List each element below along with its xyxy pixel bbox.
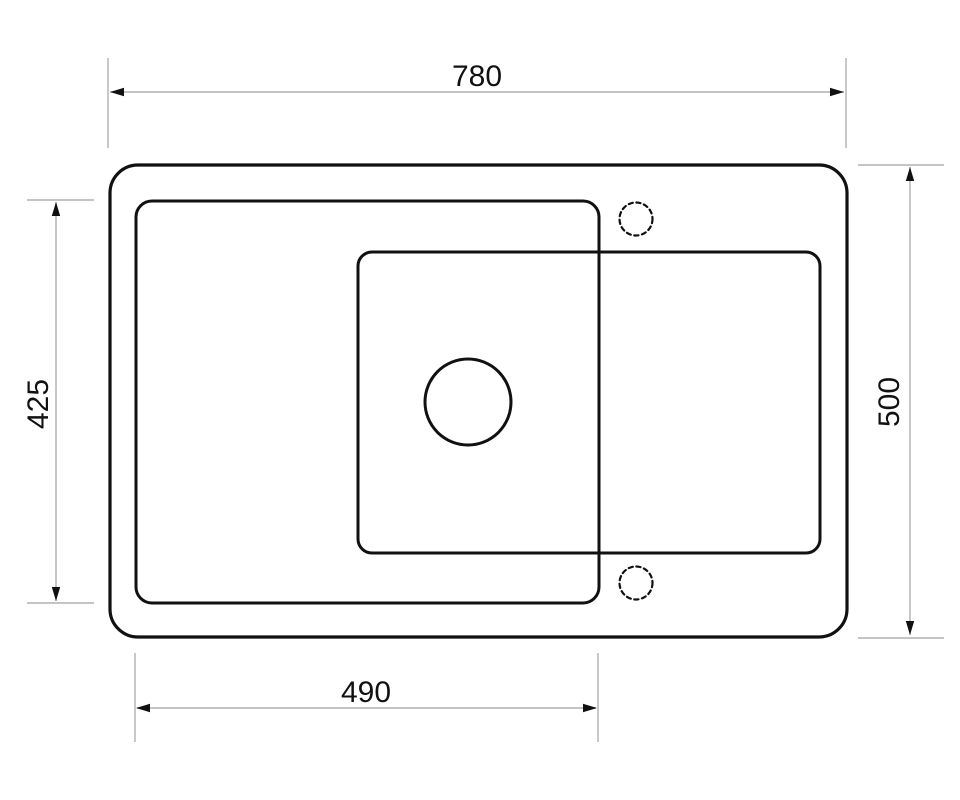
dimension-label-top: 780 — [452, 60, 502, 93]
arrowhead-right — [583, 704, 597, 712]
tap-hole-bottom — [620, 567, 653, 600]
drain-hole — [425, 359, 511, 445]
arrowhead-left — [110, 88, 124, 96]
dimension-left-height: 425 — [22, 200, 94, 603]
sink-technical-drawing: 780 425 500 490 — [0, 0, 960, 800]
sink-outer-outline — [110, 165, 847, 637]
drawing-canvas: 780 425 500 490 — [0, 0, 960, 800]
arrowhead-left — [136, 704, 150, 712]
tap-hole-top — [620, 203, 653, 236]
dimension-bottom-width: 490 — [135, 653, 598, 742]
arrowhead-down — [906, 621, 914, 635]
dimension-top-width: 780 — [108, 58, 846, 148]
drainboard-outline — [136, 201, 599, 603]
arrowhead-right — [830, 88, 844, 96]
dimension-label-bottom: 490 — [341, 676, 391, 709]
dimension-right-height: 500 — [858, 165, 944, 638]
bowl-outline — [358, 252, 820, 553]
arrowhead-up — [52, 202, 60, 216]
sink-outlines — [110, 165, 847, 637]
arrowhead-up — [906, 167, 914, 181]
dimension-label-left: 425 — [22, 379, 55, 429]
dimension-label-right: 500 — [873, 377, 906, 427]
arrowhead-down — [52, 587, 60, 601]
